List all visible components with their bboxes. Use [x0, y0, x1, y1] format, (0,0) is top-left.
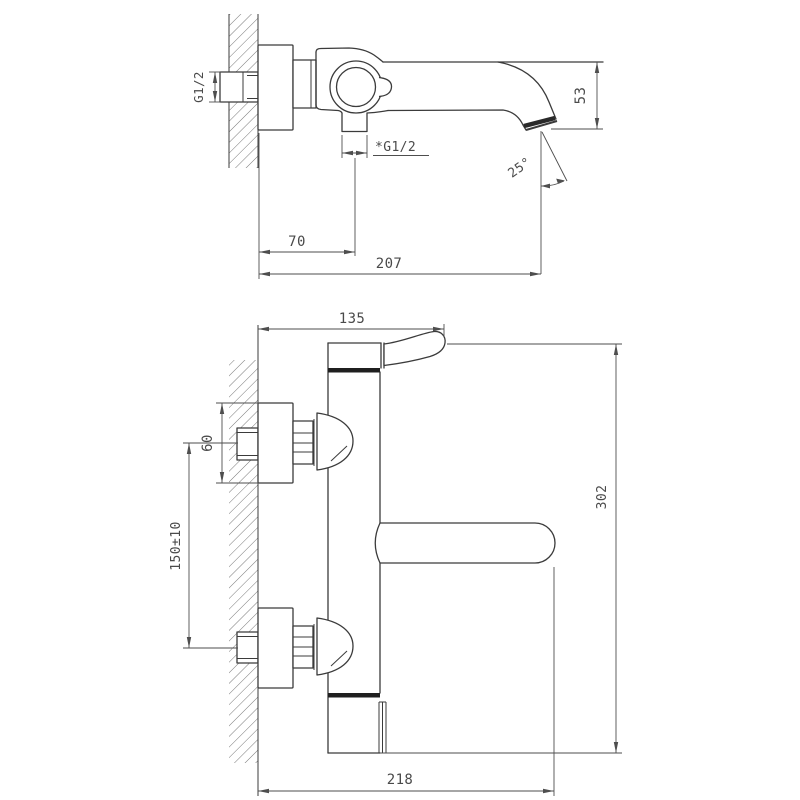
dim-supply-centres: 150±10	[169, 443, 238, 648]
dim-overall-depth: 218	[258, 567, 554, 796]
spout-reach-label: 207	[376, 256, 403, 272]
outlet-offset-label: 70	[288, 234, 306, 250]
cartridge-tab	[379, 78, 392, 97]
dim-handle-length: 135	[258, 311, 444, 337]
body-connector	[293, 60, 316, 108]
spout	[383, 62, 603, 130]
dim-spout-height: 53	[551, 62, 603, 129]
union-cone-bottom	[317, 618, 353, 675]
view-side-profile: G1/2 53 25° *G1/2	[191, 14, 603, 279]
technical-drawing-canvas: G1/2 53 25° *G1/2	[0, 0, 800, 800]
dim-spout-reach: 207	[259, 256, 541, 276]
escutcheon-side	[258, 45, 293, 130]
union-nut-top	[293, 419, 314, 466]
cartridge-cap	[330, 61, 392, 113]
handle-length-label: 135	[339, 311, 366, 327]
view-front: 135 60 150±10 302	[169, 311, 622, 796]
lever-handle	[384, 331, 445, 365]
wall-section-front	[229, 325, 258, 796]
supply-fitting-bottom	[237, 632, 258, 663]
escutcheon-bottom	[258, 608, 293, 688]
hose-bracket	[379, 702, 386, 753]
body-joint-band-top	[328, 368, 380, 373]
body-width-label: 302	[595, 485, 610, 510]
overall-depth-label: 218	[387, 772, 414, 788]
dim-inlet-thread: G1/2	[191, 71, 221, 103]
supply-fitting-top	[237, 428, 258, 460]
dim-hose-outlet-thread: *G1/2	[342, 135, 429, 256]
dim-outlet-offset: 70	[259, 133, 355, 279]
inlet-thread-label: G1/2	[191, 71, 206, 103]
dim-spray-angle: 25°	[506, 131, 567, 274]
escutcheon-top	[258, 403, 293, 483]
technical-drawing-page: G1/2 53 25° *G1/2	[0, 0, 800, 800]
inlet-tail-fitting	[220, 72, 258, 102]
mixer-body-front	[328, 343, 386, 753]
body-joint-band-bottom	[328, 693, 380, 698]
spray-angle-label: 25°	[506, 155, 535, 181]
aerator-tip	[524, 118, 557, 130]
union-cone-top	[317, 413, 353, 470]
spout-height-label: 53	[573, 87, 589, 105]
supply-centres-label: 150±10	[169, 521, 184, 570]
union-nut-bottom	[293, 624, 314, 670]
hose-outlet-thread-label: *G1/2	[375, 140, 416, 155]
spout-front	[375, 523, 555, 563]
